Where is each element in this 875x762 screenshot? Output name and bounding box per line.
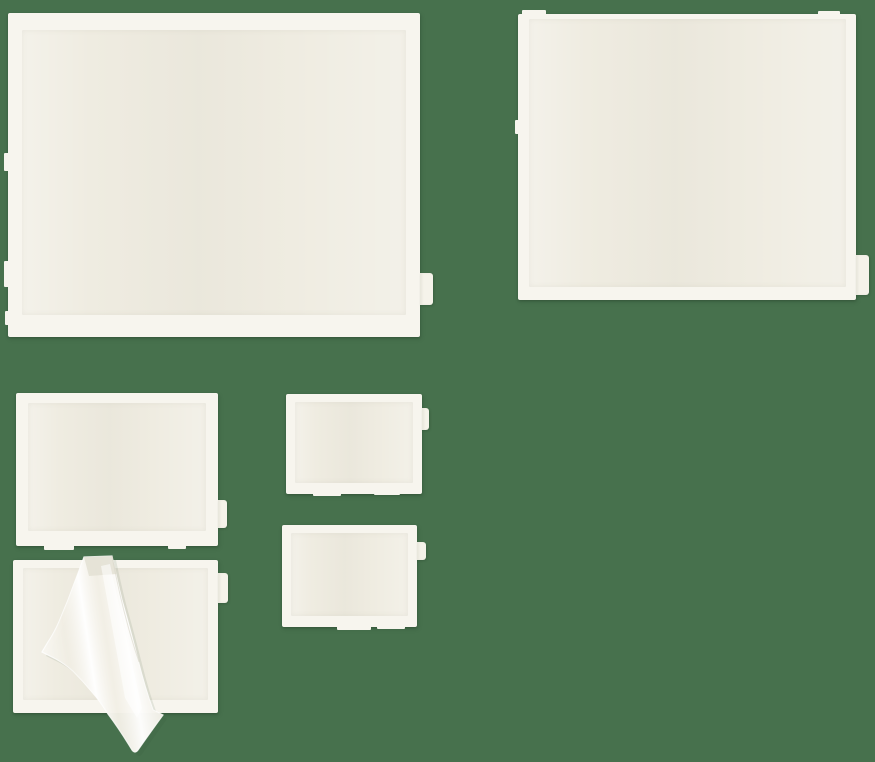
product-photo-scene (0, 0, 875, 762)
pouch-window (291, 533, 408, 616)
pull-tab (856, 255, 869, 295)
edge-nub (337, 625, 371, 630)
pull-tab (218, 573, 228, 603)
edge-nub (818, 11, 840, 15)
pull-tab (218, 500, 227, 528)
edge-nub (4, 153, 9, 171)
edge-nub (374, 492, 400, 495)
pouch-small-center-bottom (282, 525, 417, 627)
edge-nub (5, 311, 9, 325)
pull-tab (422, 408, 429, 430)
pouch-medium-middle-left (16, 393, 218, 546)
edge-nub (4, 261, 9, 287)
pull-tab (417, 542, 426, 560)
pouch-small-center-top (286, 394, 422, 494)
edge-nub (313, 492, 341, 496)
pouch-medium-peeled (13, 560, 218, 713)
edge-nub (168, 544, 186, 549)
pouch-large-top-right (518, 14, 856, 300)
edge-nub (522, 10, 546, 15)
edge-nub (44, 544, 74, 550)
pull-tab (420, 273, 433, 305)
edge-nub (515, 120, 519, 134)
pouch-large-top-left (8, 13, 420, 337)
pouch-window (22, 30, 406, 315)
pouch-window (529, 19, 846, 287)
pouch-window (23, 568, 208, 700)
pouch-window (28, 403, 206, 531)
edge-nub (377, 625, 405, 629)
pouch-window (295, 402, 413, 483)
